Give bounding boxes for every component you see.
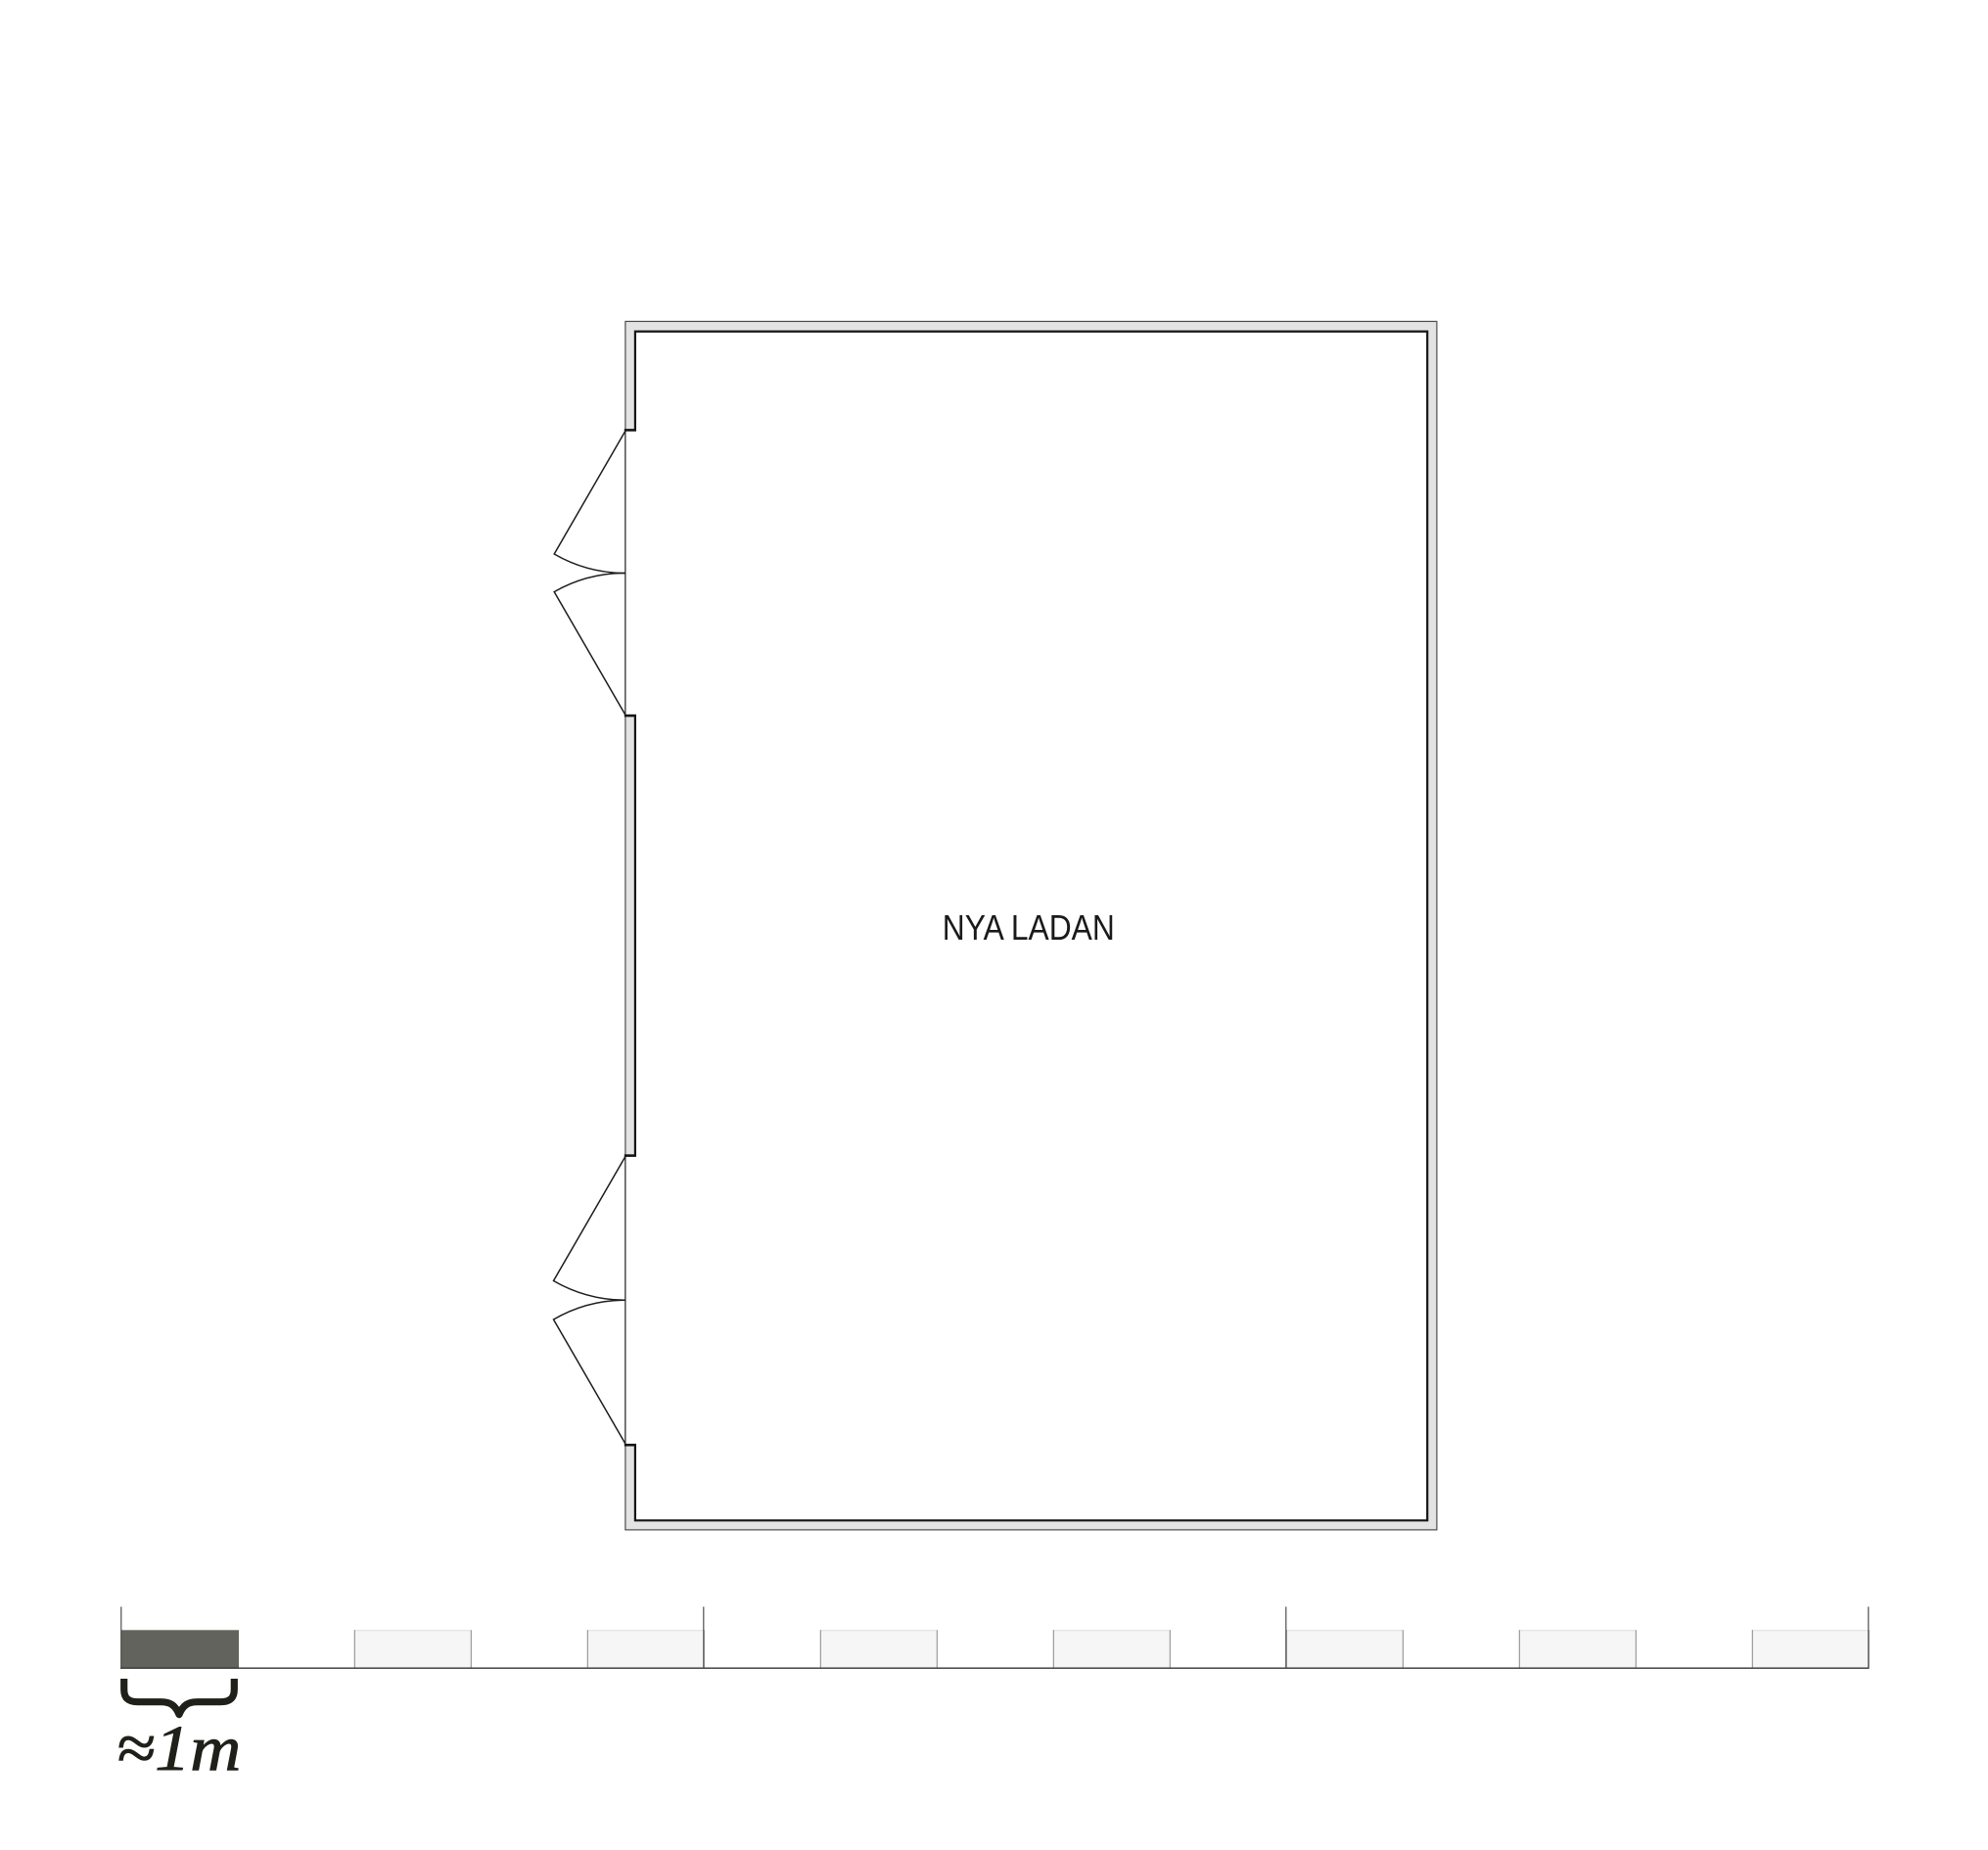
svg-text:≈1m: ≈1m (116, 1713, 241, 1784)
svg-text:NYA LADAN: NYA LADAN (943, 907, 1115, 948)
